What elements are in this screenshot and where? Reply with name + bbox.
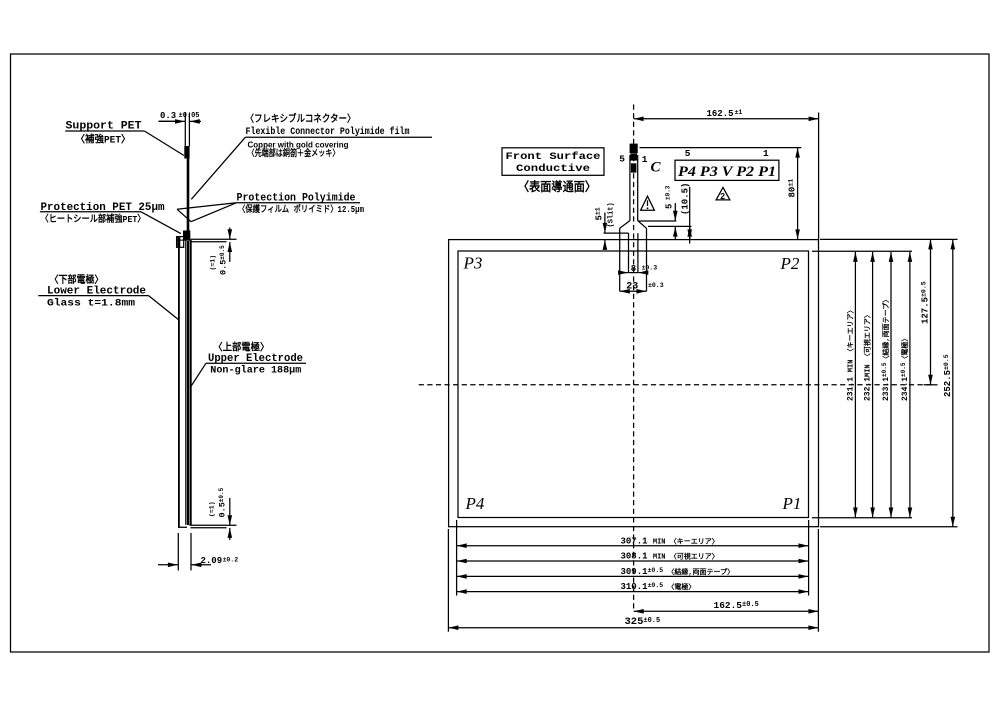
svg-text:〈ヒートシール部補強PET〉: 〈ヒートシール部補強PET〉 — [41, 213, 146, 225]
svg-text:Conductive: Conductive — [516, 163, 590, 175]
svg-text:Front Surface: Front Surface — [506, 151, 601, 163]
svg-text:±0.3: ±0.3 — [642, 265, 658, 272]
svg-text:234.1±0.5〈電極〉: 234.1±0.5〈電極〉 — [900, 335, 910, 401]
svg-text:309.1±0.5 〈結縁,両面テープ〉: 309.1±0.5 〈結縁,両面テープ〉 — [621, 567, 735, 577]
svg-text:〈先端部は銅箚＋金メッキ〉: 〈先端部は銅箚＋金メッキ〉 — [248, 147, 340, 159]
svg-text:Flexible Connector Polyimide f: Flexible Connector Polyimide film — [246, 126, 410, 138]
svg-text:5±1: 5±1 — [595, 207, 605, 220]
svg-text:〈表面導通面〉: 〈表面導通面〉 — [518, 179, 596, 195]
svg-text:(≈1): (≈1) — [209, 501, 216, 517]
svg-text:5 ±0.3: 5 ±0.3 — [665, 185, 675, 209]
svg-text:231.1 MIN 〈キーエリア〉: 231.1 MIN 〈キーエリア〉 — [847, 306, 856, 401]
svg-text:1: 1 — [642, 154, 648, 165]
svg-text:23: 23 — [626, 282, 638, 293]
svg-text:Glass t=1.8mm: Glass t=1.8mm — [47, 298, 135, 310]
svg-text:162.5: 162.5 — [707, 109, 734, 119]
svg-text:〈上部電極〉: 〈上部電極〉 — [213, 340, 269, 354]
svg-text:8: 8 — [631, 264, 636, 274]
svg-text:P1: P1 — [782, 494, 802, 513]
svg-text:P2: P2 — [780, 254, 800, 273]
svg-text:Non-glare 188μm: Non-glare 188μm — [210, 365, 301, 377]
svg-text:±0.2: ±0.2 — [223, 556, 239, 563]
svg-text:5: 5 — [619, 153, 625, 164]
svg-text:(≈1): (≈1) — [210, 255, 217, 271]
svg-text:C: C — [651, 159, 662, 175]
svg-text:127.5±0.5: 127.5±0.5 — [921, 281, 931, 324]
svg-text:〈保護フィルム ポリイミド〉12.5μm: 〈保護フィルム ポリイミド〉12.5μm — [238, 203, 364, 215]
svg-text:233.1±0.5〈結縁,両面テープ〉: 233.1±0.5〈結縁,両面テープ〉 — [881, 296, 891, 401]
svg-text:80±1: 80±1 — [788, 179, 798, 198]
svg-text:5: 5 — [685, 148, 691, 159]
svg-text:252.5±0.5: 252.5±0.5 — [943, 354, 953, 397]
svg-text:±0.3: ±0.3 — [648, 282, 664, 289]
svg-text:(10.5): (10.5) — [681, 183, 691, 215]
svg-text:2: 2 — [720, 191, 725, 201]
svg-text:232.1MIN 〈可視エリア〉: 232.1MIN 〈可視エリア〉 — [863, 311, 873, 401]
svg-text:P4 P3 V P2 P1: P4 P3 V P2 P1 — [678, 164, 776, 180]
svg-text:325±0.5: 325±0.5 — [625, 616, 661, 628]
svg-text:162.5±0.5: 162.5±0.5 — [714, 600, 759, 611]
svg-text:0.3: 0.3 — [160, 111, 176, 121]
svg-text:307.1 MIN 〈キーエリア〉: 307.1 MIN 〈キーエリア〉 — [621, 536, 719, 546]
svg-text:〈フレキシブルコネクター〉: 〈フレキシブルコネクター〉 — [246, 112, 356, 126]
svg-text:2.09: 2.09 — [201, 556, 223, 566]
svg-text:〈補強PET〉: 〈補強PET〉 — [76, 133, 131, 147]
svg-text:0.5±0.5: 0.5±0.5 — [219, 245, 229, 275]
svg-text:P4: P4 — [465, 494, 485, 513]
svg-text:(Slit): (Slit) — [608, 202, 616, 227]
svg-text:310.1±0.5 〈電極〉: 310.1±0.5 〈電極〉 — [621, 582, 696, 592]
svg-text:308.1 MIN 〈可視エリア〉: 308.1 MIN 〈可視エリア〉 — [621, 552, 719, 562]
svg-text:P3: P3 — [463, 253, 483, 272]
svg-text:1: 1 — [763, 148, 769, 159]
svg-text:0.5±0.5: 0.5±0.5 — [218, 487, 228, 517]
svg-text:±1: ±1 — [735, 109, 743, 116]
